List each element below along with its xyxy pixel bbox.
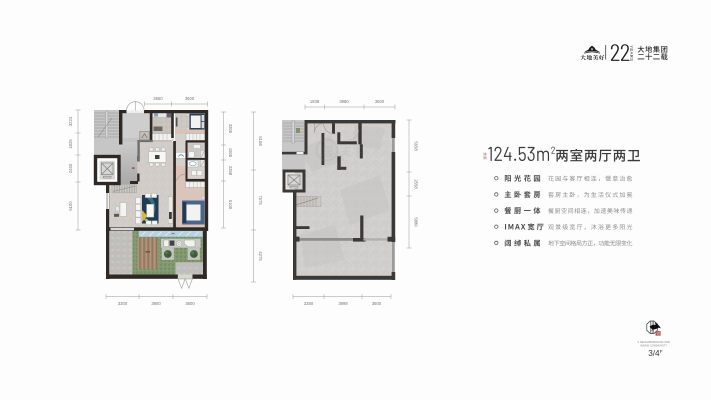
svg-text:3900: 3900 <box>151 301 161 306</box>
svg-text:2558: 2558 <box>414 179 419 189</box>
svg-text:4275: 4275 <box>258 251 263 261</box>
svg-text:5880: 5880 <box>414 217 419 227</box>
svg-text:3998: 3998 <box>338 301 348 306</box>
svg-text:1826: 1826 <box>68 139 73 149</box>
svg-text:WARM COMMUNITY: WARM COMMUNITY <box>640 343 667 347</box>
svg-text:3600: 3600 <box>372 301 382 306</box>
svg-text:1500: 1500 <box>228 148 233 158</box>
svg-text:3980: 3980 <box>339 99 349 104</box>
svg-text:39: 39 <box>336 165 344 172</box>
svg-text:2450: 2450 <box>68 163 73 173</box>
svg-text:3380: 3380 <box>304 301 314 306</box>
svg-text:A NEIGHBORHOOD AND: A NEIGHBORHOOD AND <box>637 340 670 344</box>
svg-text:6100: 6100 <box>68 201 73 211</box>
svg-text:1938: 1938 <box>310 99 320 104</box>
svg-text:2358: 2358 <box>228 166 233 176</box>
svg-text:3600: 3600 <box>375 99 385 104</box>
svg-text:3300: 3300 <box>118 301 128 306</box>
svg-text:2650: 2650 <box>153 96 163 101</box>
svg-text:6100: 6100 <box>228 200 233 210</box>
svg-text:3600: 3600 <box>185 96 195 101</box>
svg-text:3224: 3224 <box>68 116 73 126</box>
svg-text:3600: 3600 <box>185 301 195 306</box>
svg-text:7575: 7575 <box>258 195 263 205</box>
svg-text:5658: 5658 <box>414 141 419 151</box>
svg-text:3300: 3300 <box>228 124 233 134</box>
svg-text:5108: 5108 <box>258 136 263 146</box>
svg-text:3/4F: 3/4F <box>648 349 662 358</box>
svg-text:YEARS: YEARS <box>629 45 634 61</box>
